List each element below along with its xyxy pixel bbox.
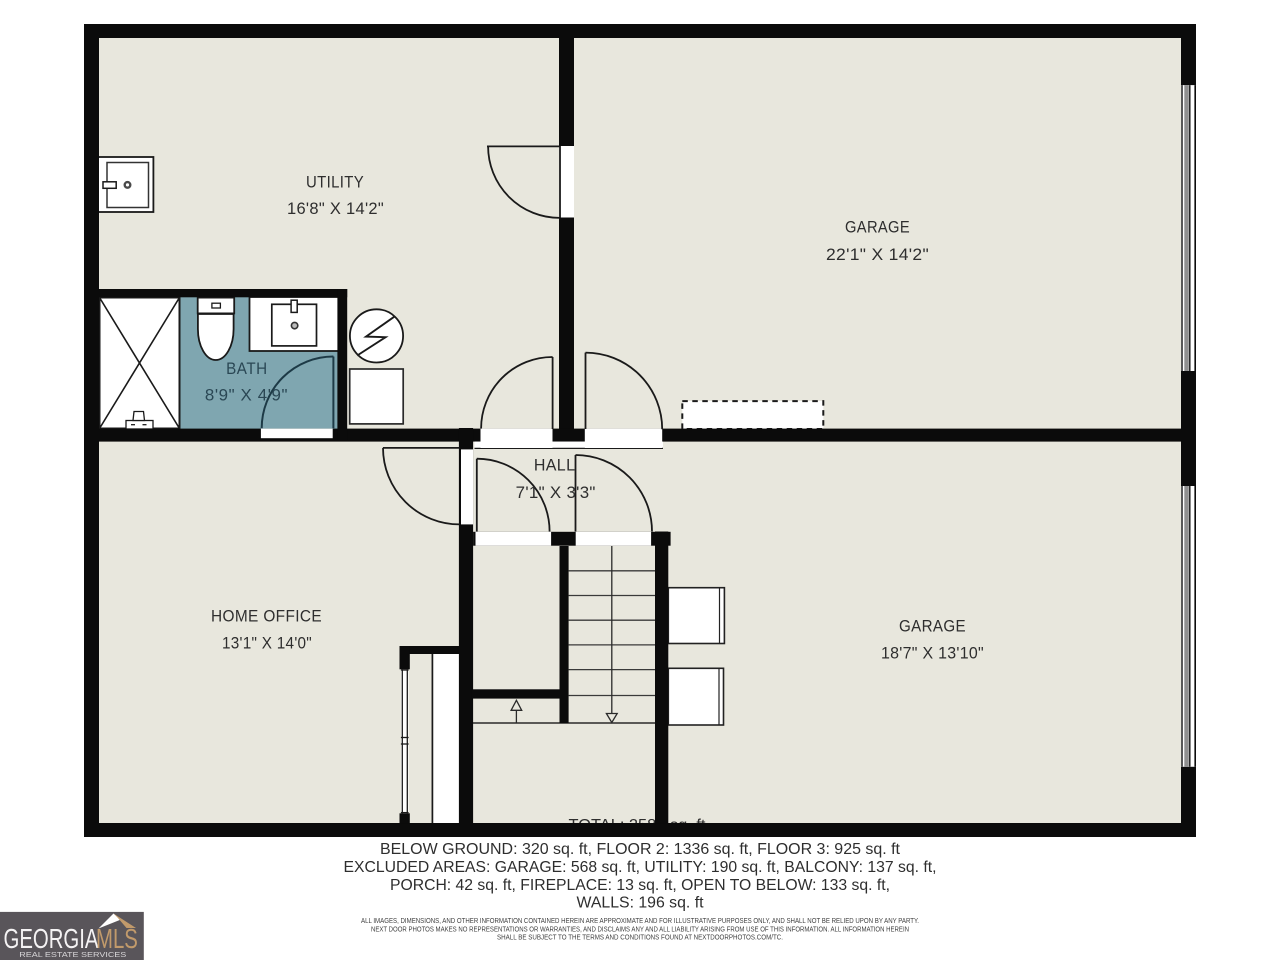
svg-text:EXCLUDED AREAS: GARAGE: 568 sq: EXCLUDED AREAS: GARAGE: 568 sq. ft, UTIL… xyxy=(344,859,937,876)
svg-text:HOME OFFICE: HOME OFFICE xyxy=(211,607,322,626)
svg-text:7'1" X 3'3": 7'1" X 3'3" xyxy=(516,483,596,502)
svg-text:WALLS: 196 sq. ft: WALLS: 196 sq. ft xyxy=(577,895,705,912)
svg-text:22'1" X 14'2": 22'1" X 14'2" xyxy=(826,245,929,264)
svg-text:13'1" X 14'0": 13'1" X 14'0" xyxy=(222,634,312,653)
svg-text:GARAGE: GARAGE xyxy=(899,617,966,636)
svg-text:BATH: BATH xyxy=(226,359,268,378)
svg-text:PORCH: 42 sq. ft, FIREPLACE: 1: PORCH: 42 sq. ft, FIREPLACE: 13 sq. ft, … xyxy=(390,877,890,894)
svg-text:BELOW GROUND: 320 sq. ft, FLOO: BELOW GROUND: 320 sq. ft, FLOOR 2: 1336 … xyxy=(380,841,901,858)
svg-text:HALL: HALL xyxy=(534,456,576,475)
svg-text:8'9" X 4'9": 8'9" X 4'9" xyxy=(205,386,288,405)
svg-text:16'8" X 14'2": 16'8" X 14'2" xyxy=(287,199,384,218)
svg-text:REAL ESTATE SERVICES: REAL ESTATE SERVICES xyxy=(19,950,126,959)
svg-text:SHALL BE SUBJECT TO THE TERMS: SHALL BE SUBJECT TO THE TERMS AND CONDIT… xyxy=(497,933,783,942)
svg-text:UTILITY: UTILITY xyxy=(306,172,364,191)
svg-text:GARAGE: GARAGE xyxy=(845,218,910,237)
svg-text:18'7" X 13'10": 18'7" X 13'10" xyxy=(881,643,984,662)
